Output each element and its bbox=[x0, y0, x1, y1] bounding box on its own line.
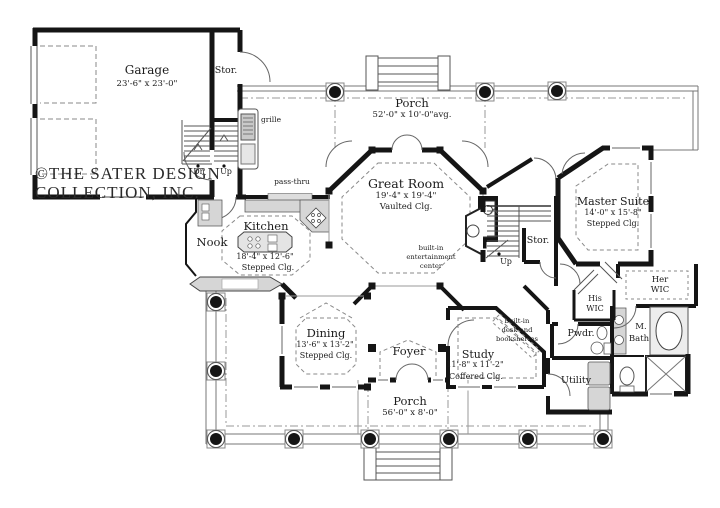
column-icon bbox=[519, 430, 537, 448]
study-dims: 11'-8" x 11'-2" bbox=[446, 361, 503, 369]
great-room-label: Great Room bbox=[368, 177, 444, 190]
column-icon bbox=[548, 82, 566, 100]
kitchen-island bbox=[238, 232, 292, 252]
stor-garage-label: Stor. bbox=[215, 66, 238, 76]
porch-top-label: Porch bbox=[395, 97, 429, 109]
dining-label: Dining bbox=[307, 327, 346, 339]
sink-icon bbox=[597, 327, 607, 340]
porch-top-dims: 52'-0" x 10'-0"avg. bbox=[373, 111, 452, 120]
powder-label: Pwdr. bbox=[567, 329, 594, 339]
porch-bottom-dims: 56'-0" x 8'-0" bbox=[382, 409, 437, 418]
column-icon bbox=[207, 430, 225, 448]
sink-icon bbox=[615, 316, 624, 325]
washer-icon bbox=[588, 362, 610, 385]
floor-plan-page: Garage 23'-6" x 23'-0" Stor. Porch 52'-0… bbox=[0, 0, 720, 508]
up-stairs-label: Up bbox=[500, 258, 512, 266]
column-icon bbox=[361, 430, 379, 448]
stor-stairs-label: Stor. bbox=[527, 236, 550, 246]
his-wic-label-1: His bbox=[588, 295, 602, 303]
cooktop-icon bbox=[248, 237, 252, 241]
foyer-label: Foyer bbox=[392, 345, 425, 357]
his-wic-label-2: WIC bbox=[586, 305, 604, 313]
great-room-ceiling: Vaulted Clg. bbox=[380, 203, 433, 212]
grille-label: grille bbox=[261, 116, 281, 124]
column-icon bbox=[285, 430, 303, 448]
entertainment-label-3: center bbox=[420, 263, 442, 270]
great-room-dims: 19'-4" x 19'-4" bbox=[376, 192, 437, 201]
master-bath-label-1: M. bbox=[635, 323, 646, 332]
utility-label: Utility bbox=[561, 376, 591, 386]
island-sink-icon bbox=[268, 235, 277, 242]
entertainment-label-2: entertainment bbox=[406, 254, 455, 261]
master-bath-label-2: Bath bbox=[629, 335, 649, 344]
column-icon bbox=[476, 83, 494, 101]
up-garage-label: Up bbox=[220, 168, 232, 176]
porch-bottom-label: Porch bbox=[393, 395, 427, 407]
entertainment-label-1: built-in bbox=[419, 245, 444, 252]
pass-thru-sill bbox=[268, 194, 312, 201]
nook-label: Nook bbox=[197, 236, 228, 248]
copyright-line-2: COLLECTION, INC. bbox=[35, 183, 200, 203]
copyright-line-1: ©THE SATER DESIGN bbox=[35, 164, 221, 184]
toilet-icon bbox=[591, 342, 603, 354]
column-icon bbox=[207, 293, 225, 311]
desk-label-1: built-in bbox=[505, 318, 530, 325]
garage-label: Garage bbox=[125, 64, 169, 77]
her-wic-label-2: WIC bbox=[651, 286, 670, 295]
her-wic-label-1: Her bbox=[652, 276, 669, 285]
pass-thru-label: pass-thru bbox=[274, 178, 310, 186]
kitchen-label: Kitchen bbox=[244, 220, 289, 232]
tub-icon bbox=[656, 312, 682, 350]
dining-ceiling: Stepped Clg. bbox=[300, 352, 352, 360]
column-icon bbox=[594, 430, 612, 448]
study-ceiling: Coffered Clg. bbox=[449, 373, 503, 381]
column-icon bbox=[440, 430, 458, 448]
column-icon bbox=[326, 83, 344, 101]
garage-dims: 23'-6" x 23'-0" bbox=[117, 80, 178, 89]
dining-dims: 13'-6" x 13'-2" bbox=[296, 341, 353, 349]
kitchen-sink-counter bbox=[198, 200, 222, 226]
master-suite-label: Master Suite bbox=[577, 196, 649, 208]
desk-label-2: desk and bbox=[502, 327, 533, 334]
column-icon bbox=[207, 362, 225, 380]
bottom-entry-steps bbox=[364, 446, 452, 480]
center-stairs bbox=[466, 158, 556, 310]
toilet-icon bbox=[620, 367, 634, 385]
floorplan-drawing bbox=[0, 0, 720, 508]
grille-fixture bbox=[238, 109, 258, 169]
kitchen-dims: 18'-4" x 12'-6" bbox=[236, 253, 293, 261]
master-suite-ceiling: Stepped Clg. bbox=[587, 220, 639, 228]
top-entry-steps bbox=[366, 56, 450, 90]
study-label: Study bbox=[462, 349, 494, 361]
sink-icon bbox=[615, 336, 624, 345]
kitchen-ceiling: Stepped Clg. bbox=[242, 264, 294, 272]
desk-label-3: bookshelves bbox=[496, 336, 538, 343]
master-suite-dims: 14'-0" x 15'-8" bbox=[584, 209, 641, 217]
dryer-icon bbox=[588, 387, 610, 410]
